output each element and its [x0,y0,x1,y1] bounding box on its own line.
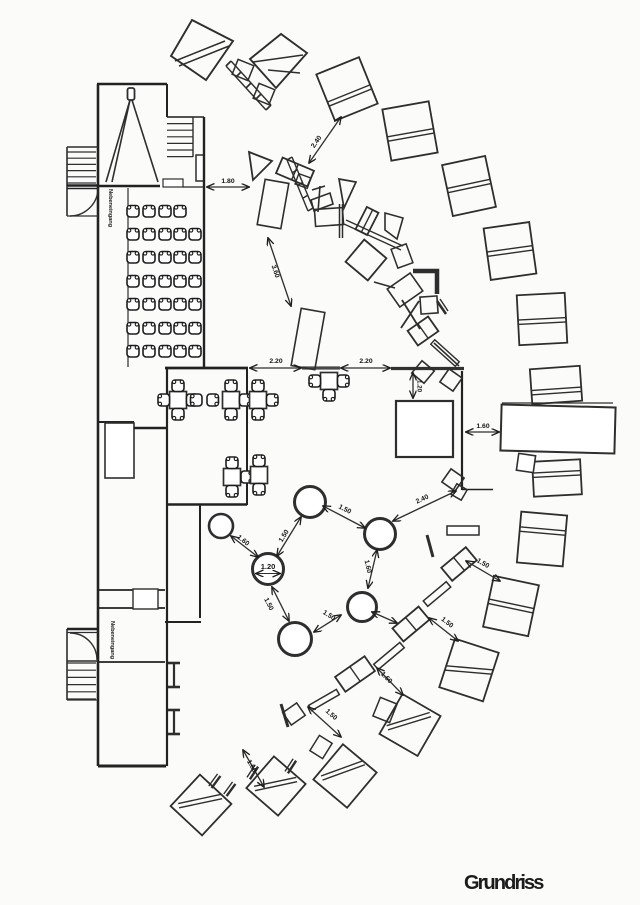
svg-text:1.20: 1.20 [261,562,276,571]
svg-text:1.20: 1.20 [416,380,423,393]
svg-text:2.20: 2.20 [359,358,372,365]
svg-text:Grundriss: Grundriss [464,872,544,894]
svg-text:1.80: 1.80 [221,178,234,185]
svg-text:Nebeneingang: Nebeneingang [107,189,113,228]
svg-text:1.60: 1.60 [476,423,489,430]
svg-text:2.20: 2.20 [269,358,282,365]
svg-text:Nebeneingang: Nebeneingang [109,621,115,660]
